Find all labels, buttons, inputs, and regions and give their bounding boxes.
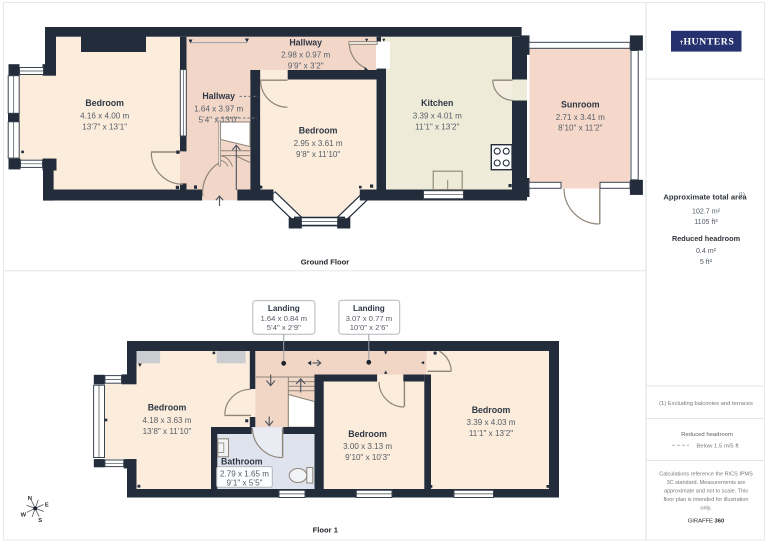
svg-text:floor plan is intended for ill: floor plan is intended for illustration — [664, 497, 749, 503]
svg-text:3.39 x 4.01 m: 3.39 x 4.01 m — [413, 112, 462, 121]
svg-text:Hallway: Hallway — [289, 37, 322, 47]
svg-text:Bathroom: Bathroom — [221, 457, 263, 467]
svg-text:13’8" x 11’10": 13’8" x 11’10" — [143, 427, 192, 436]
svg-text:Reduced headroom: Reduced headroom — [681, 432, 733, 438]
svg-text:5’4" x 2’9": 5’4" x 2’9" — [267, 323, 301, 332]
svg-text:1.64 x 0.84 m: 1.64 x 0.84 m — [261, 314, 308, 323]
svg-text:Bedroom: Bedroom — [472, 405, 511, 415]
svg-text:(1) Excluding balconies and te: (1) Excluding balconies and terraces — [659, 401, 753, 407]
svg-text:5’4" x 13’0": 5’4" x 13’0" — [198, 116, 239, 125]
svg-text:2.71 x 3.41 m: 2.71 x 3.41 m — [556, 113, 605, 122]
svg-text:†HUNTERS: †HUNTERS — [680, 37, 735, 48]
svg-text:Sunroom: Sunroom — [561, 99, 600, 109]
svg-text:Hallway: Hallway — [202, 91, 235, 101]
svg-text:(1): (1) — [739, 192, 745, 197]
svg-text:Landing: Landing — [353, 304, 385, 313]
svg-text:9’8" x 11’10": 9’8" x 11’10" — [296, 150, 340, 159]
svg-text:11’1" x 13’2": 11’1" x 13’2" — [469, 429, 513, 438]
svg-text:102.7 m²: 102.7 m² — [692, 208, 721, 216]
svg-text:Below 1.5 m/5 ft: Below 1.5 m/5 ft — [696, 444, 739, 450]
svg-text:Approximate total area: Approximate total area — [663, 193, 747, 202]
svg-text:4.18 x 3.63 m: 4.18 x 3.63 m — [142, 416, 191, 425]
svg-text:Calculations reference the RIC: Calculations reference the RICS IPMS — [659, 472, 753, 478]
svg-text:3C standard. Measurements are: 3C standard. Measurements are — [667, 480, 746, 486]
svg-text:only.: only. — [700, 506, 712, 512]
svg-text:9’10" x 10’3": 9’10" x 10’3" — [345, 453, 390, 462]
svg-text:Bedroom: Bedroom — [85, 98, 124, 108]
svg-text:11’1" x 13’2": 11’1" x 13’2" — [415, 122, 459, 131]
svg-text:approximate and not to scale.: approximate and not to scale. This — [664, 489, 748, 495]
svg-text:Bedroom: Bedroom — [348, 429, 387, 439]
svg-text:10’0" x 2’6": 10’0" x 2’6" — [350, 323, 389, 332]
svg-text:Bedroom: Bedroom — [299, 126, 338, 136]
svg-text:4.16 x 4.00 m: 4.16 x 4.00 m — [80, 112, 129, 121]
svg-text:13’7" x 13’1": 13’7" x 13’1" — [82, 123, 127, 132]
svg-text:8’10" x 11’2": 8’10" x 11’2" — [558, 124, 602, 133]
svg-text:Ground Floor: Ground Floor — [301, 257, 350, 266]
svg-text:3.39 x 4.03 m: 3.39 x 4.03 m — [466, 418, 515, 427]
svg-text:9’9" x 3’2": 9’9" x 3’2" — [288, 62, 324, 71]
svg-text:Kitchen: Kitchen — [421, 98, 453, 108]
svg-text:2.98 x 0.97 m: 2.98 x 0.97 m — [281, 51, 330, 60]
svg-text:3.00 x 3.13 m: 3.00 x 3.13 m — [343, 442, 392, 451]
svg-text:Landing: Landing — [268, 304, 300, 313]
svg-text:Bedroom: Bedroom — [148, 403, 187, 413]
svg-text:3.07 x 0.77 m: 3.07 x 0.77 m — [346, 314, 393, 323]
svg-text:2.79 x 1.65 m: 2.79 x 1.65 m — [220, 470, 269, 479]
svg-text:1.64 x 3.97 m: 1.64 x 3.97 m — [194, 105, 243, 114]
svg-text:GIRAFFE 360: GIRAFFE 360 — [688, 518, 724, 524]
svg-text:N: N — [28, 496, 32, 502]
svg-text:2.95 x 3.61 m: 2.95 x 3.61 m — [294, 139, 343, 148]
svg-text:S: S — [38, 518, 42, 524]
svg-text:E: E — [45, 503, 49, 509]
svg-text:0.4 m²: 0.4 m² — [696, 247, 717, 255]
svg-text:W: W — [21, 512, 27, 518]
svg-text:9’1" x 5’5": 9’1" x 5’5" — [227, 478, 263, 487]
svg-text:Reduced headroom: Reduced headroom — [672, 234, 741, 243]
svg-text:5 ft²: 5 ft² — [700, 258, 713, 266]
svg-text:1105 ft²: 1105 ft² — [694, 218, 718, 226]
svg-text:Floor 1: Floor 1 — [313, 526, 339, 535]
